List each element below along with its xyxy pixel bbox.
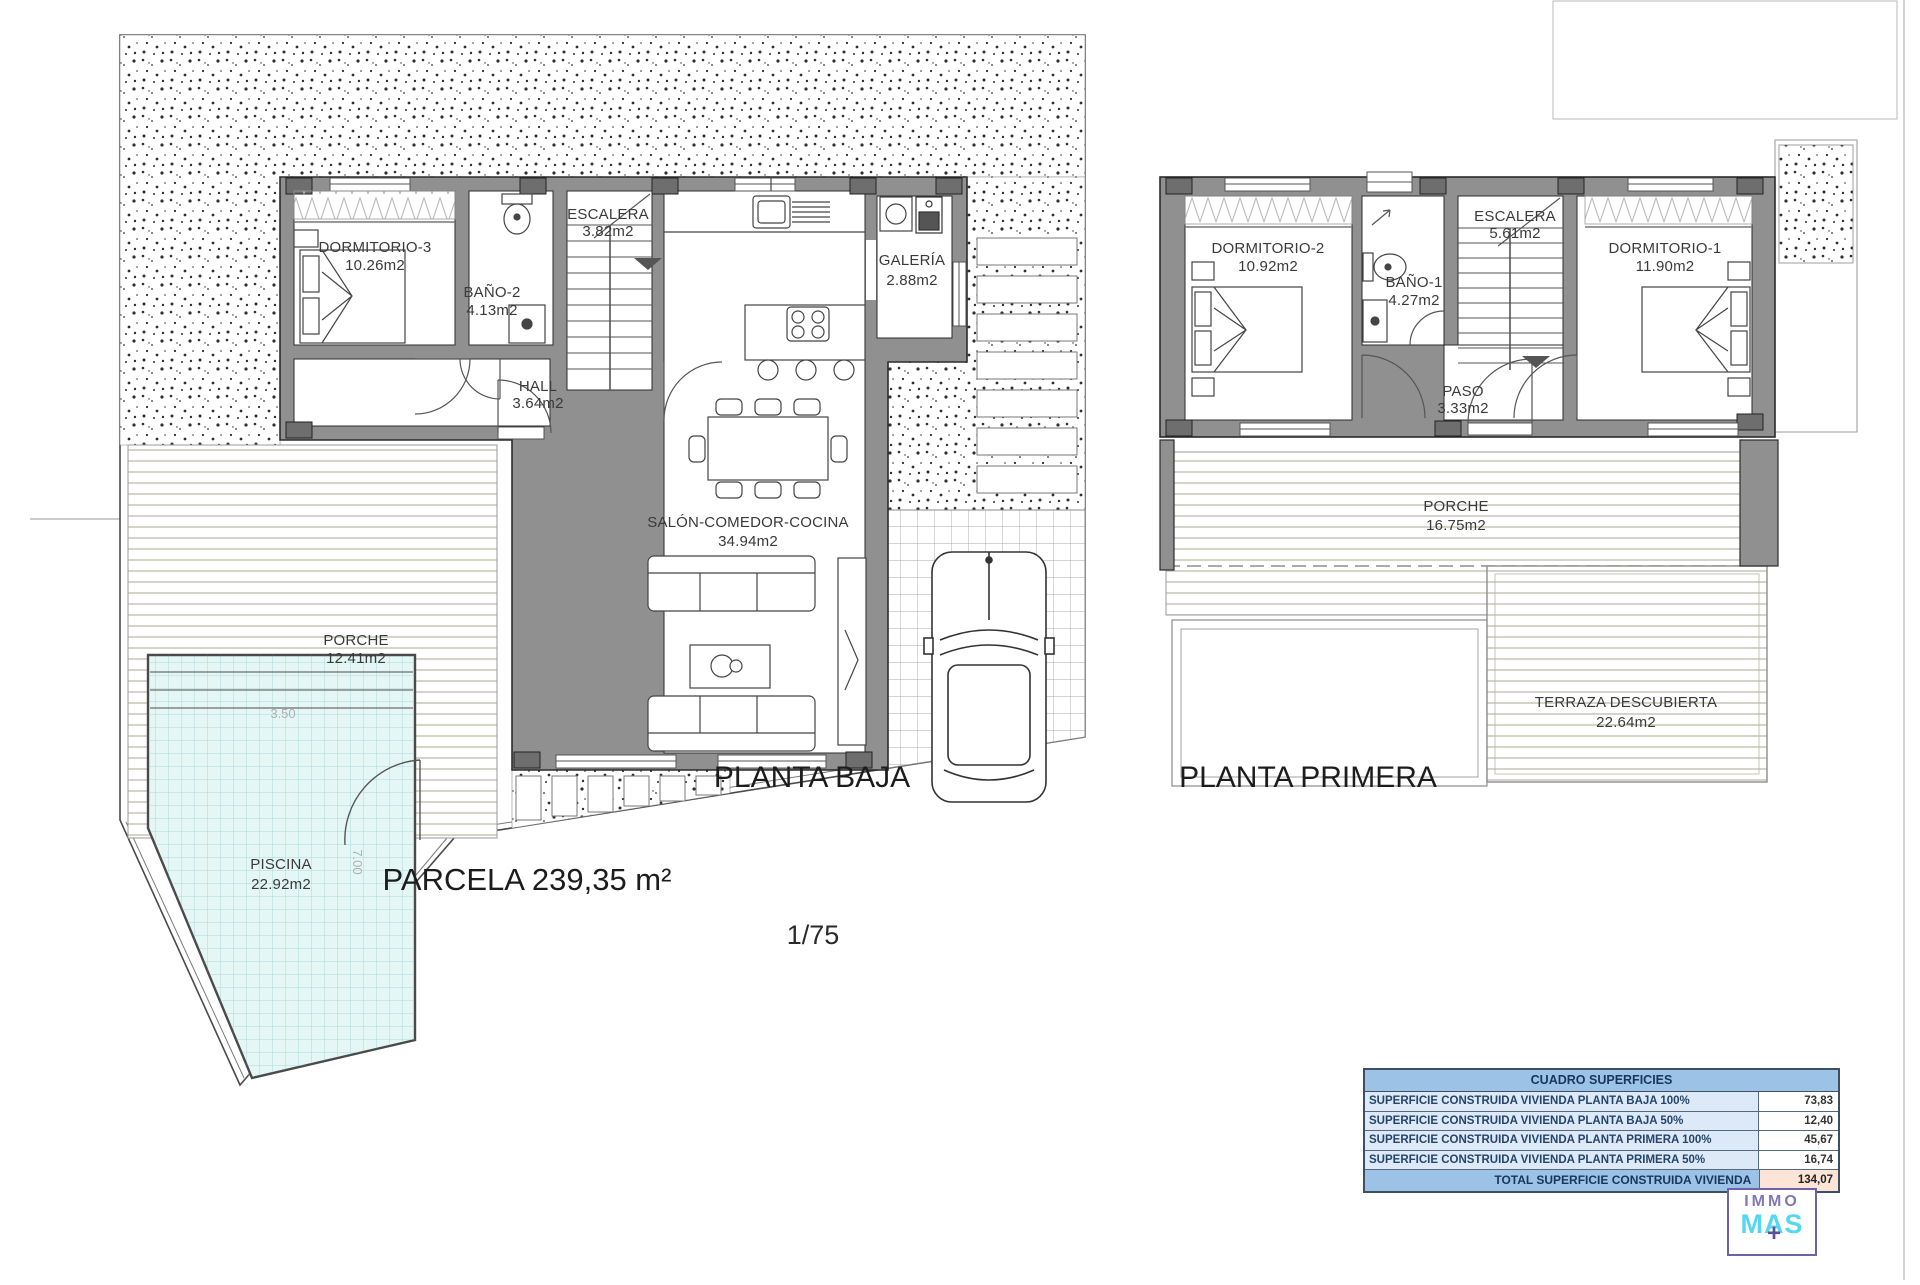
table-row-label: SUPERFICIE CONSTRUIDA VIVIENDA PLANTA PR… — [1365, 1151, 1759, 1170]
room-hall-label: HALL — [519, 378, 557, 395]
scale-label: 1/75 — [787, 920, 840, 950]
car-icon — [924, 552, 1054, 802]
room-terraza-area: 22.64m2 — [1596, 714, 1656, 731]
areas-table: CUADRO SUPERFICIES SUPERFICIE CONSTRUIDA… — [1363, 1068, 1840, 1193]
room-escalera-first-area: 5.61m2 — [1489, 225, 1540, 242]
table-row-value: 73,83 — [1759, 1092, 1838, 1111]
wardrobe-icon-d2 — [1185, 196, 1352, 227]
sofa-icon-bottom — [648, 696, 815, 751]
wardrobe-icon-d1 — [1585, 196, 1752, 227]
stool-icon — [834, 360, 854, 380]
table-total-label: TOTAL SUPERFICIE CONSTRUIDA VIVIENDA — [1365, 1170, 1760, 1191]
room-escalera-ground-area: 3.82m2 — [582, 223, 633, 240]
room-porche-ground-label: PORCHE — [323, 632, 388, 649]
room-porche-ground-area: 12.41m2 — [326, 650, 386, 667]
table-row: SUPERFICIE CONSTRUIDA VIVIENDA PLANTA PR… — [1365, 1131, 1838, 1151]
room-bano-1-label: BAÑO-1 — [1385, 274, 1442, 291]
stepping-stones-path — [977, 238, 1077, 493]
room-dormitorio-2-label: DORMITORIO-2 — [1212, 240, 1325, 257]
room-escalera-first-label: ESCALERA — [1474, 208, 1556, 225]
ground-floor-plan: 3.50 7.00 PISCINA 22.92m2 — [120, 35, 1085, 1085]
room-bano-2-area: 4.13m2 — [466, 302, 517, 319]
room-bano-2-label: BAÑO-2 — [463, 284, 520, 301]
pool-width-dim: 3.50 — [270, 706, 295, 721]
table-row: SUPERFICIE CONSTRUIDA VIVIENDA PLANTA BA… — [1365, 1092, 1838, 1112]
room-dormitorio-3-area: 10.26m2 — [345, 257, 405, 274]
ground-floor-title: PLANTA BAJA — [714, 761, 910, 794]
washing-machine-icon — [880, 197, 912, 231]
room-porche-first-area: 16.75m2 — [1426, 517, 1486, 534]
room-dormitorio-1-label: DORMITORIO-1 — [1609, 240, 1722, 257]
annex-gravel — [1779, 145, 1853, 263]
room-paso-area: 3.33m2 — [1437, 400, 1488, 417]
table-row: SUPERFICIE CONSTRUIDA VIVIENDA PLANTA PR… — [1365, 1151, 1838, 1171]
table-row-label: SUPERFICIE CONSTRUIDA VIVIENDA PLANTA PR… — [1365, 1131, 1759, 1150]
coffee-table-icon — [690, 645, 770, 688]
brand-logo: IMMO MAS + — [1727, 1188, 1817, 1256]
floorplan-sheet: 3.50 7.00 PISCINA 22.92m2 — [0, 0, 1920, 1280]
room-bano-1-area: 4.27m2 — [1388, 292, 1439, 309]
tv-cabinet-icon — [838, 558, 866, 745]
room-porche-first-label: PORCHE — [1423, 498, 1488, 515]
stool-icon — [796, 360, 816, 380]
terrace-deck: TERRAZA DESCUBIERTA 22.64m2 — [1487, 566, 1767, 782]
room-salon-area: 34.94m2 — [718, 533, 778, 550]
sofa-icon-top — [648, 556, 815, 611]
room-dormitorio-2-area: 10.92m2 — [1238, 258, 1298, 275]
room-dormitorio-1-area: 11.90m2 — [1636, 258, 1695, 275]
porch-column-right — [1740, 440, 1778, 566]
table-row-value: 12,40 — [1759, 1112, 1838, 1131]
room-galeria-area: 2.88m2 — [886, 272, 937, 289]
table-row-label: SUPERFICIE CONSTRUIDA VIVIENDA PLANTA BA… — [1365, 1112, 1759, 1131]
first-floor-plan: TERRAZA DESCUBIERTA 22.64m2 — [1160, 140, 1857, 794]
room-paso-label: PASO — [1442, 383, 1483, 400]
room-dormitorio-3-label: DORMITORIO-3 — [319, 239, 432, 256]
title-block-empty — [1553, 1, 1897, 119]
table-row-value: 45,67 — [1759, 1131, 1838, 1150]
pool-length-dim: 7.00 — [350, 849, 365, 874]
porch-column-left — [1160, 440, 1174, 570]
room-piscina-label: PISCINA — [250, 856, 311, 873]
first-floor-title: PLANTA PRIMERA — [1179, 761, 1437, 794]
stool-icon — [758, 360, 778, 380]
pool: 3.50 7.00 PISCINA 22.92m2 — [148, 655, 415, 1078]
areas-table-title: CUADRO SUPERFICIES — [1365, 1070, 1838, 1092]
sink-icon-b1 — [1363, 300, 1387, 342]
plus-icon: + — [1767, 1220, 1781, 1248]
toilet-icon-b2 — [502, 194, 532, 234]
table-row-value: 16,74 — [1759, 1151, 1838, 1170]
kitchen-island — [745, 305, 865, 380]
table-row-label: SUPERFICIE CONSTRUIDA VIVIENDA PLANTA BA… — [1365, 1092, 1759, 1111]
parcel-label: PARCELA 239,35 m² — [383, 862, 672, 897]
room-hall — [294, 359, 550, 426]
room-galeria-label: GALERÍA — [879, 252, 945, 269]
room-hall-area: 3.64m2 — [512, 395, 563, 412]
room-escalera-ground-label: ESCALERA — [567, 206, 649, 223]
laundry-sink-icon — [916, 197, 942, 233]
room-piscina-area: 22.92m2 — [251, 876, 311, 893]
room-salon-label: SALÓN-COMEDOR-COCINA — [647, 514, 849, 531]
room-terraza-label: TERRAZA DESCUBIERTA — [1535, 694, 1717, 711]
table-row: SUPERFICIE CONSTRUIDA VIVIENDA PLANTA BA… — [1365, 1112, 1838, 1132]
wardrobe-icon-d3 — [294, 191, 455, 222]
